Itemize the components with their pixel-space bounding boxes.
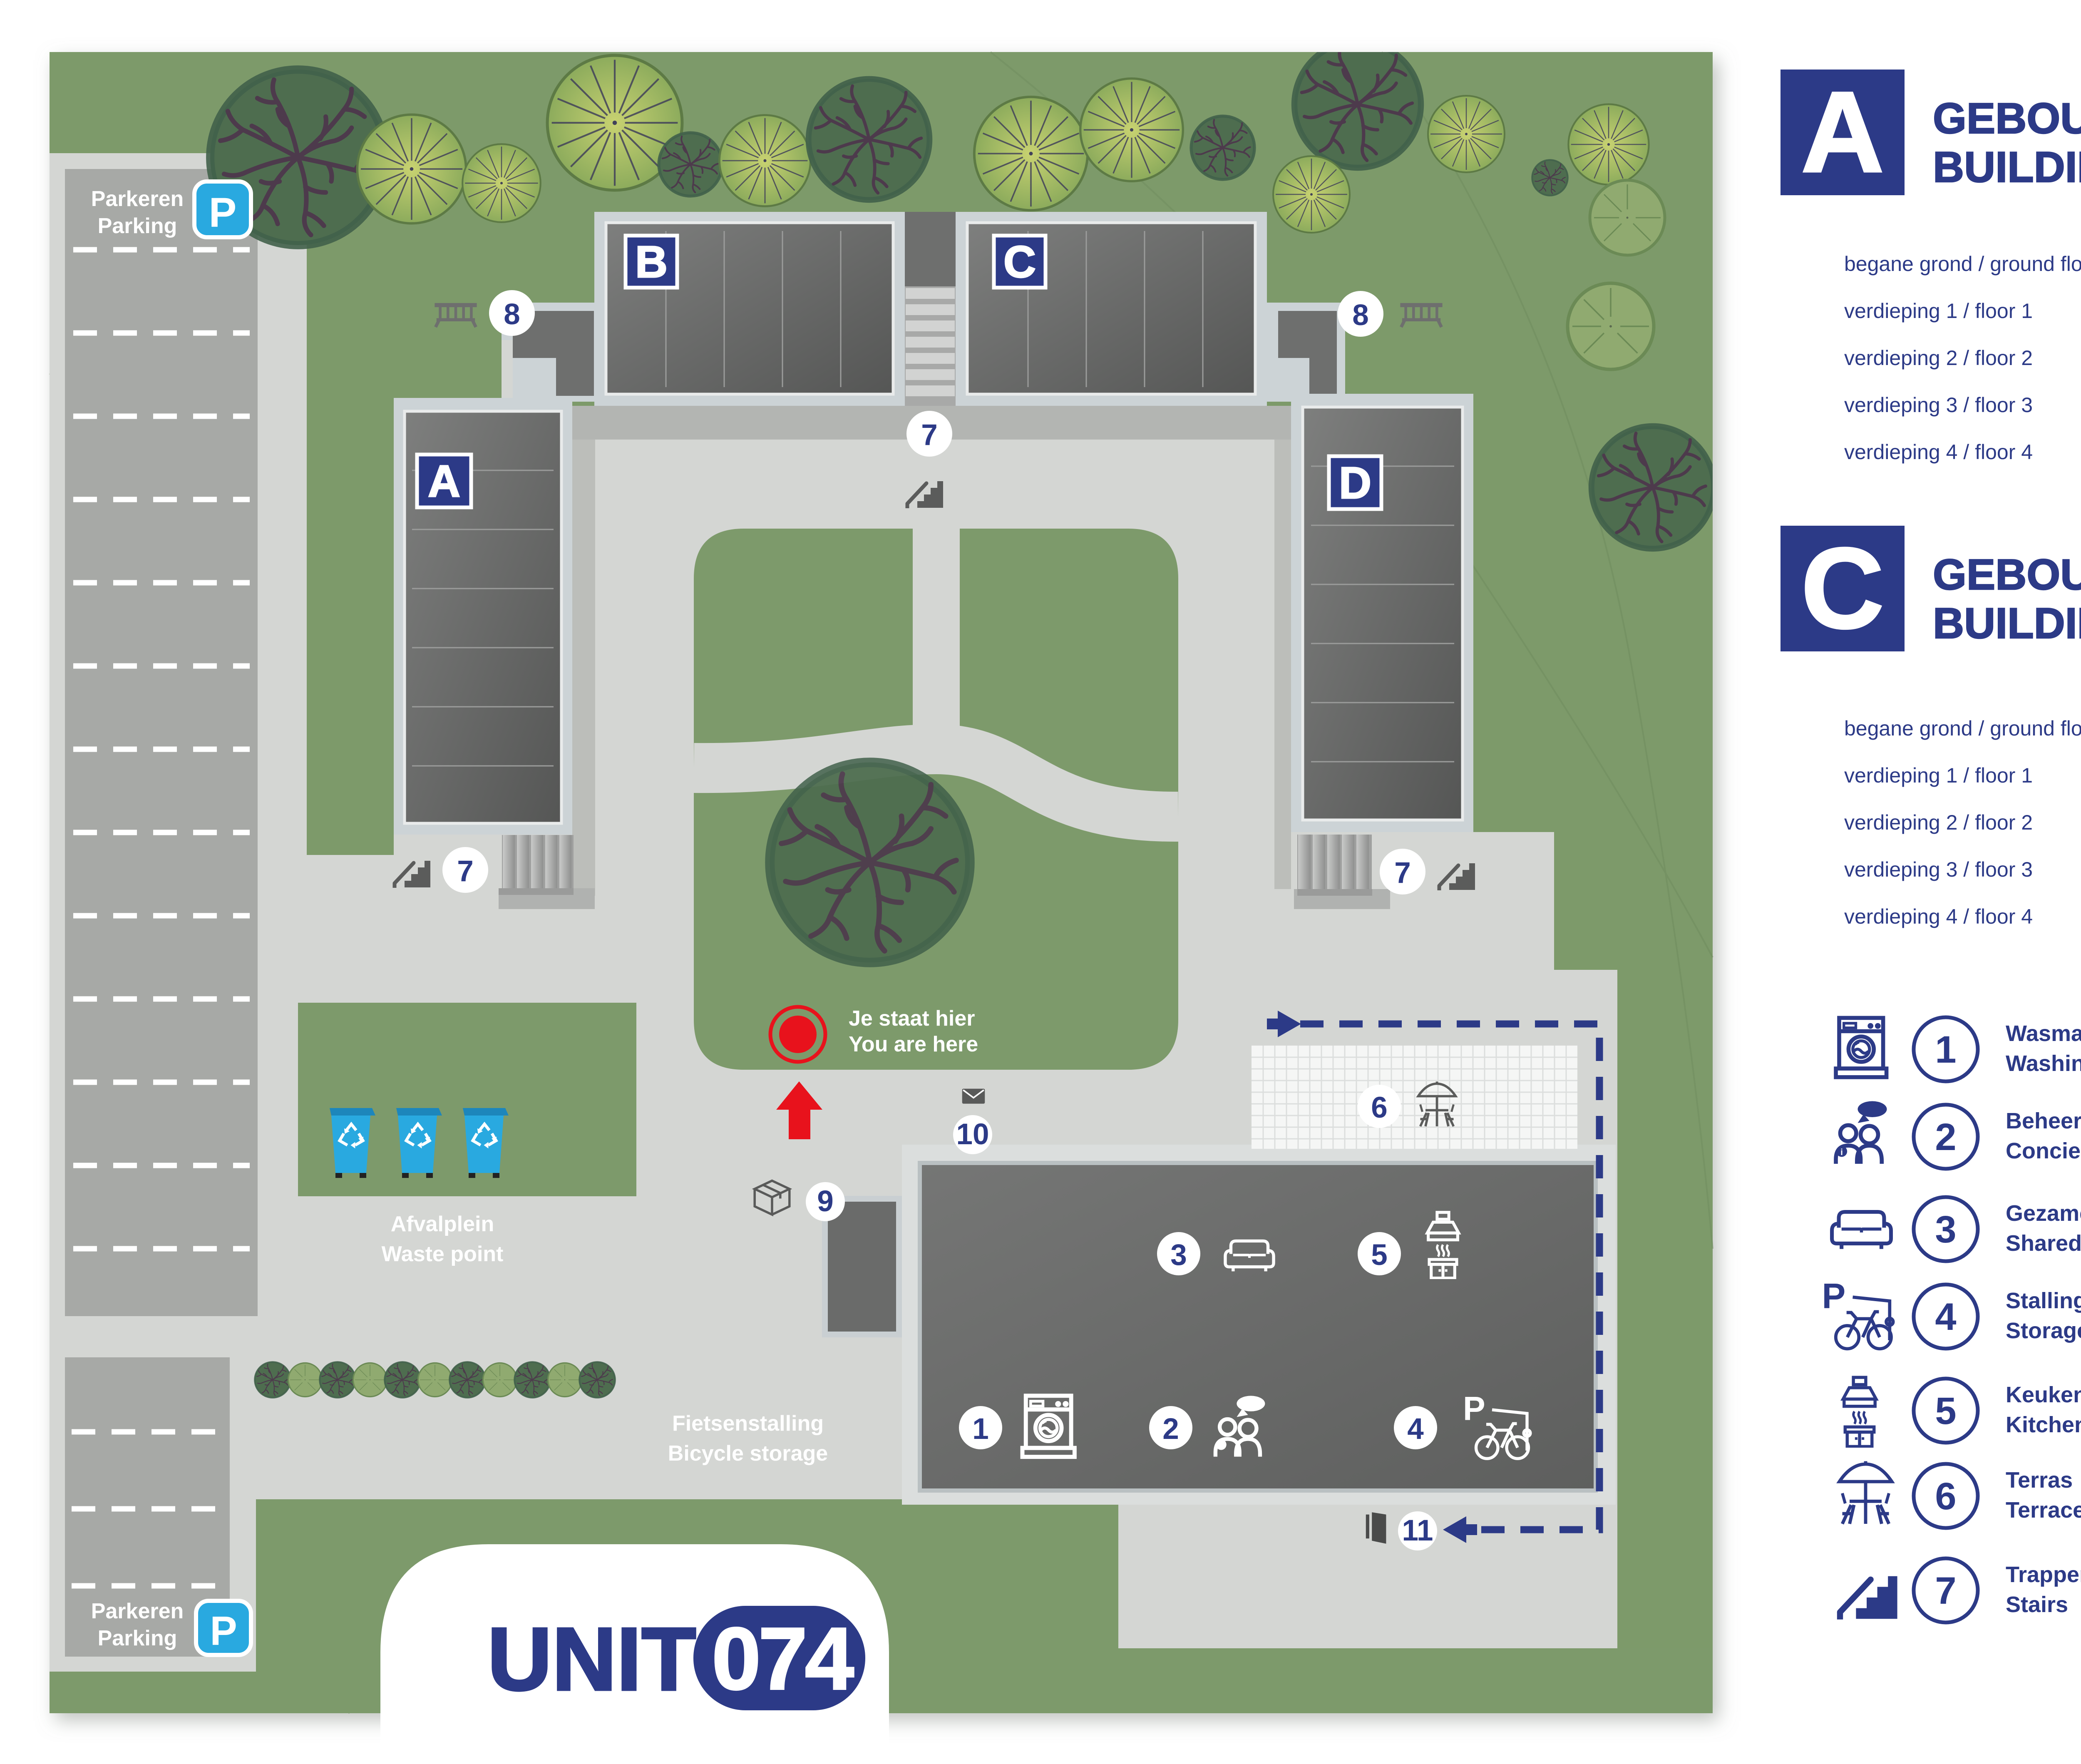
svg-text:Parking: Parking: [98, 1626, 177, 1650]
svg-text:P: P: [209, 189, 237, 236]
svg-text:Fietsenstalling: Fietsenstalling: [672, 1411, 824, 1436]
svg-text:3: 3: [1935, 1208, 1956, 1251]
svg-text:Shared living room: Shared living room: [2006, 1231, 2081, 1256]
svg-text:verdieping 3 / floor 3: verdieping 3 / floor 3: [1844, 393, 2033, 417]
svg-text:verdieping 2 / floor 2: verdieping 2 / floor 2: [1844, 346, 2033, 370]
svg-text:5: 5: [1371, 1239, 1388, 1272]
svg-text:6: 6: [1935, 1475, 1956, 1518]
svg-text:7: 7: [921, 419, 938, 452]
svg-text:verdieping 1 / floor 1: verdieping 1 / floor 1: [1844, 764, 2033, 787]
svg-text:Afvalplein: Afvalplein: [391, 1212, 494, 1236]
svg-text:2: 2: [1935, 1116, 1956, 1158]
svg-text:verdieping 3 / floor 3: verdieping 3 / floor 3: [1844, 858, 2033, 881]
svg-text:Terras: Terras: [2006, 1468, 2073, 1493]
svg-text:5: 5: [1935, 1390, 1956, 1432]
svg-text:074: 074: [712, 1609, 854, 1708]
svg-text:A: A: [428, 456, 460, 506]
svg-text:D: D: [1339, 457, 1371, 508]
svg-text:10: 10: [956, 1118, 989, 1151]
svg-text:P: P: [210, 1608, 237, 1654]
svg-text:Stairs: Stairs: [2006, 1592, 2068, 1617]
svg-text:8: 8: [504, 298, 520, 331]
svg-text:11: 11: [1402, 1514, 1433, 1547]
svg-text:Bicycle storage: Bicycle storage: [668, 1441, 828, 1466]
svg-text:Waste point: Waste point: [382, 1242, 504, 1266]
svg-text:8: 8: [1352, 299, 1369, 332]
svg-text:Concierge: Concierge: [2006, 1138, 2081, 1163]
svg-text:GEBOUW: GEBOUW: [1933, 551, 2081, 599]
svg-text:Trappen: Trappen: [2006, 1562, 2081, 1587]
svg-text:4: 4: [1407, 1413, 1424, 1446]
svg-text:UNIT: UNIT: [487, 1609, 696, 1709]
svg-text:Terrace: Terrace: [2006, 1498, 2081, 1523]
svg-text:begane grond / ground floor: begane grond / ground floor: [1844, 252, 2081, 276]
svg-text:You are here: You are here: [849, 1032, 978, 1056]
svg-text:Washing machines and dryers: Washing machines and dryers: [2006, 1051, 2081, 1076]
svg-text:verdieping 4 / floor 4: verdieping 4 / floor 4: [1844, 905, 2033, 928]
svg-text:Parkeren: Parkeren: [91, 1599, 184, 1623]
svg-text:begane grond / ground floor: begane grond / ground floor: [1844, 717, 2081, 740]
svg-text:2: 2: [1162, 1413, 1179, 1446]
svg-text:B: B: [635, 236, 668, 287]
svg-text:verdieping 2 / floor 2: verdieping 2 / floor 2: [1844, 811, 2033, 834]
svg-text:BUILDING: BUILDING: [1933, 599, 2081, 648]
svg-text:Parkeren: Parkeren: [91, 187, 184, 211]
svg-text:3: 3: [1170, 1239, 1187, 1272]
svg-text:1: 1: [972, 1413, 989, 1446]
svg-text:GEBOUW: GEBOUW: [1933, 94, 2081, 143]
svg-text:Beheerder: Beheerder: [2006, 1108, 2081, 1133]
svg-text:Je staat hier: Je staat hier: [849, 1006, 975, 1031]
svg-text:Keuken: Keuken: [2006, 1382, 2081, 1407]
svg-text:Wasmachines en wasdrogers: Wasmachines en wasdrogers: [2006, 1021, 2081, 1046]
svg-text:9: 9: [817, 1185, 834, 1218]
svg-text:4: 4: [1935, 1296, 1956, 1338]
svg-text:verdieping 1 / floor 1: verdieping 1 / floor 1: [1844, 299, 2033, 323]
svg-text:C: C: [1801, 524, 1884, 652]
svg-text:verdieping 4 / floor 4: verdieping 4 / floor 4: [1844, 440, 2033, 464]
svg-text:BUILDING: BUILDING: [1933, 143, 2081, 191]
svg-text:A: A: [1801, 68, 1884, 196]
svg-text:7: 7: [1935, 1570, 1956, 1612]
svg-text:Parking: Parking: [98, 214, 177, 238]
svg-text:7: 7: [1394, 857, 1411, 889]
svg-text:7: 7: [457, 855, 474, 888]
svg-text:Gezamenlijke woonkamer: Gezamenlijke woonkamer: [2006, 1201, 2081, 1226]
svg-text:Stalling elektrische voertuige: Stalling elektrische voertuigen: [2006, 1288, 2081, 1313]
svg-text:Kitchen: Kitchen: [2006, 1412, 2081, 1437]
svg-text:6: 6: [1371, 1091, 1388, 1124]
svg-text:1: 1: [1935, 1029, 1956, 1071]
svg-text:Storage electric vehicles: Storage electric vehicles: [2006, 1318, 2081, 1343]
svg-text:C: C: [1003, 236, 1036, 287]
